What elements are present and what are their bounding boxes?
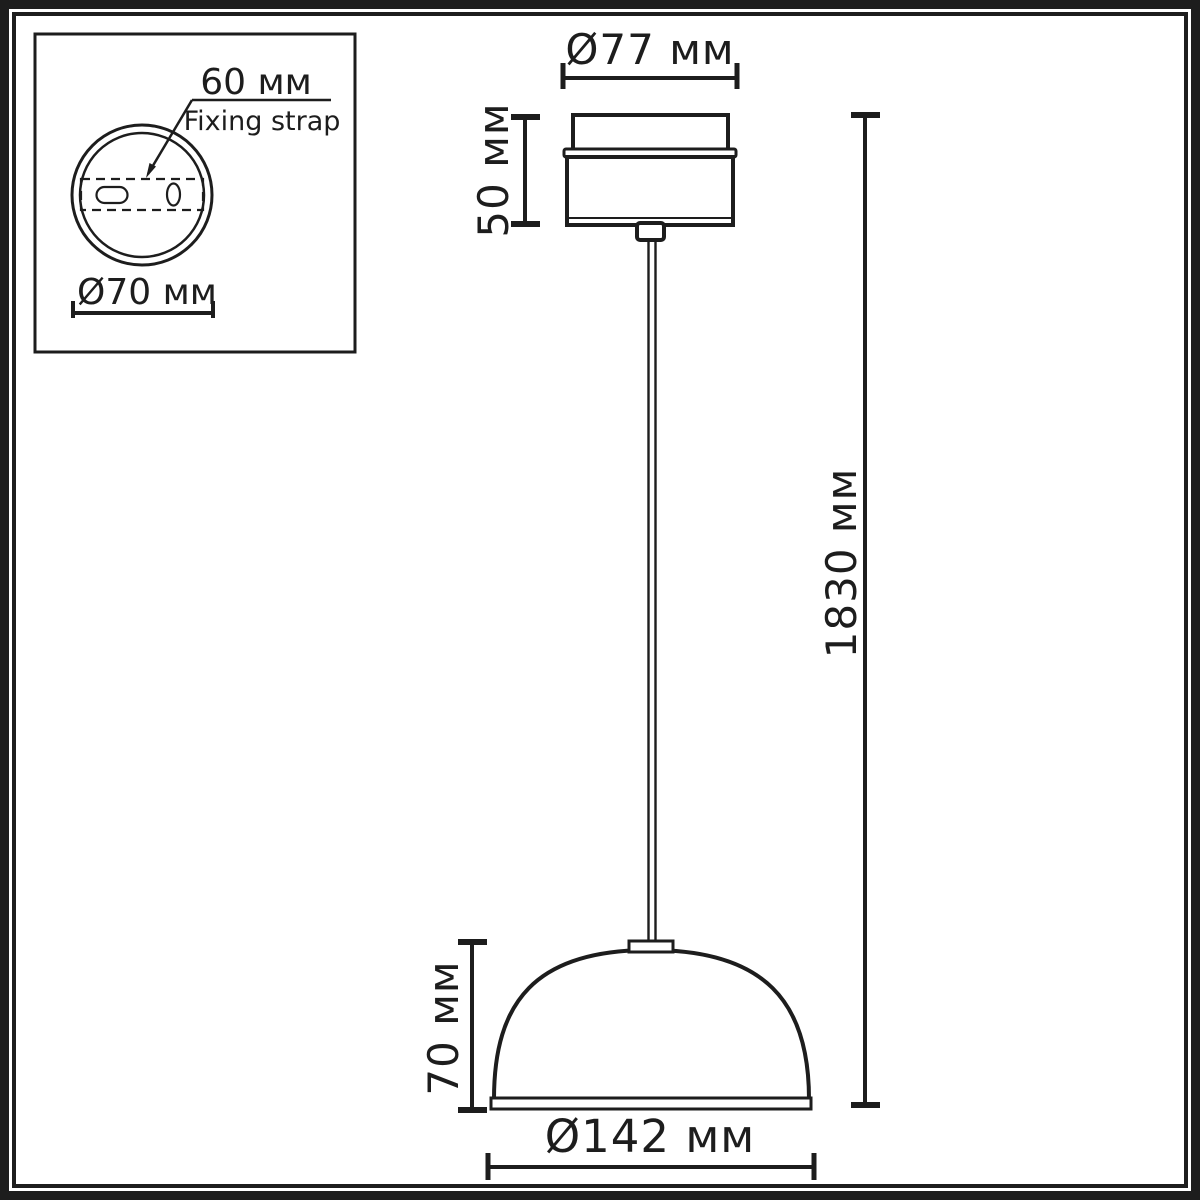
- strap-width-label: 60 мм: [200, 62, 312, 103]
- pendant-side-view: Ø77 мм 50 мм 1830 мм 70 мм: [419, 25, 880, 1180]
- canopy-mounting-plate: [573, 115, 728, 152]
- canopy-height-label: 50 мм: [469, 102, 518, 237]
- technical-drawing-svg: 60 мм Fixing strap Ø70 мм: [0, 0, 1200, 1200]
- dome-shade-body: [494, 950, 809, 1099]
- dome-shade: [491, 941, 811, 1109]
- shade-height-label: 70 мм: [419, 960, 468, 1095]
- dome-top-collar: [629, 941, 673, 952]
- strap-round-hole: [167, 184, 180, 206]
- ceiling-canopy: [564, 115, 736, 240]
- canopy-body: [567, 157, 733, 225]
- lamp-dimension-drawing: 60 мм Fixing strap Ø70 мм: [0, 0, 1200, 1200]
- cord-grip: [637, 223, 664, 240]
- suspension-cord: [649, 238, 656, 946]
- fixing-strap-outline: [81, 179, 203, 210]
- inset-canopy-top-view: 60 мм Fixing strap Ø70 мм: [35, 34, 355, 352]
- strap-name-label: Fixing strap: [184, 106, 341, 137]
- dim-suspension-length: 1830 мм: [817, 115, 880, 1105]
- dim-canopy-diameter: Ø77 мм: [563, 25, 737, 89]
- dim-shade-height: 70 мм: [419, 942, 487, 1110]
- canopy-outer-circle: [72, 125, 212, 265]
- canopy-inner-circle: [80, 133, 204, 257]
- strap-slot-hole: [97, 187, 128, 203]
- base-diameter-label: Ø70 мм: [77, 272, 217, 313]
- dim-shade-diameter: Ø142 мм: [488, 1110, 814, 1180]
- dome-bottom-rim: [491, 1098, 811, 1109]
- dim-canopy-height: 50 мм: [469, 102, 540, 237]
- canopy-diameter-label: Ø77 мм: [565, 25, 734, 74]
- shade-diameter-label: Ø142 мм: [545, 1110, 756, 1163]
- suspension-length-label: 1830 мм: [817, 468, 866, 659]
